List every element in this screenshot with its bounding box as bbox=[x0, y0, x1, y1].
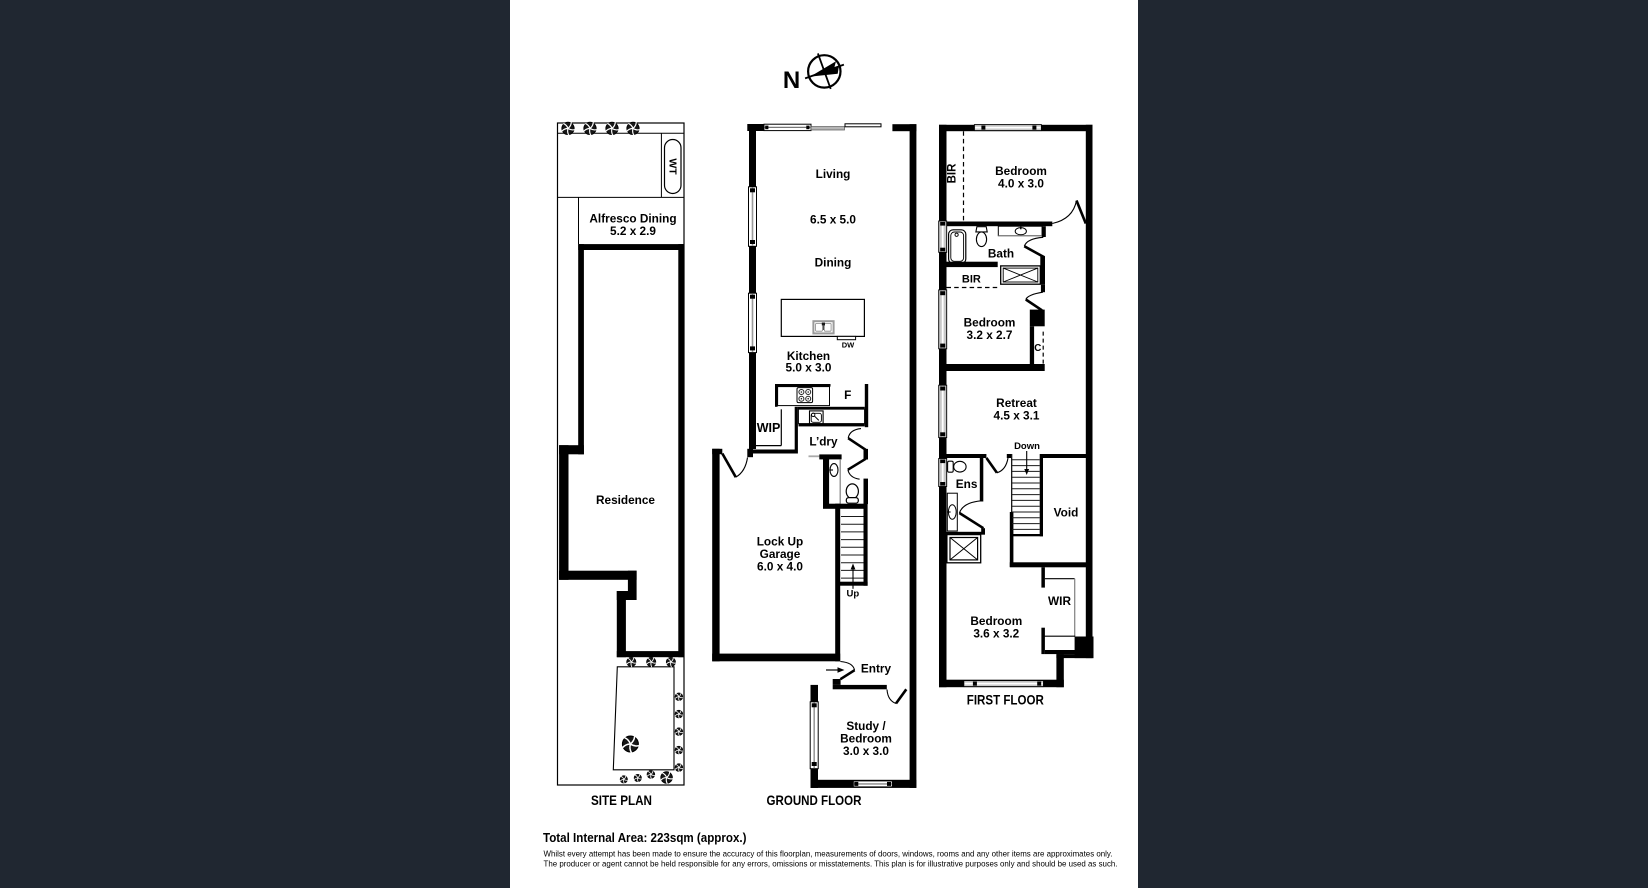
svg-text:WIR: WIR bbox=[1048, 594, 1071, 608]
svg-text:6.0 x 4.0: 6.0 x 4.0 bbox=[757, 560, 803, 574]
svg-text:3.0 x 3.0: 3.0 x 3.0 bbox=[843, 744, 889, 758]
svg-text:F: F bbox=[844, 388, 851, 402]
svg-text:N: N bbox=[783, 67, 800, 94]
svg-text:C: C bbox=[1034, 343, 1041, 354]
svg-text:5.2 x 2.9: 5.2 x 2.9 bbox=[610, 224, 656, 238]
svg-text:Up: Up bbox=[846, 589, 859, 600]
svg-text:L’dry: L’dry bbox=[809, 434, 838, 448]
svg-text:Ens: Ens bbox=[956, 477, 978, 491]
svg-text:Residence: Residence bbox=[596, 493, 655, 507]
svg-text:5.0 x 3.0: 5.0 x 3.0 bbox=[786, 360, 832, 374]
svg-text:Void: Void bbox=[1054, 506, 1079, 520]
svg-text:Living: Living bbox=[816, 167, 851, 181]
svg-text:Entry: Entry bbox=[861, 662, 892, 676]
svg-text:BIR: BIR bbox=[962, 274, 981, 286]
svg-text:6.5 x 5.0: 6.5 x 5.0 bbox=[810, 213, 856, 227]
svg-text:Whilst every attempt has been: Whilst every attempt has been made to en… bbox=[544, 848, 1113, 858]
svg-text:3.6 x 3.2: 3.6 x 3.2 bbox=[973, 627, 1019, 641]
svg-text:4.5 x 3.1: 4.5 x 3.1 bbox=[994, 408, 1040, 422]
svg-text:WIP: WIP bbox=[757, 421, 781, 435]
svg-text:Bath: Bath bbox=[988, 246, 1014, 260]
svg-text:Total Internal Area: 223sqm (a: Total Internal Area: 223sqm (approx.) bbox=[543, 831, 747, 845]
svg-text:BIR: BIR bbox=[947, 163, 959, 184]
svg-text:Down: Down bbox=[1014, 441, 1040, 452]
svg-text:SITE PLAN: SITE PLAN bbox=[591, 792, 652, 808]
svg-text:FIRST FLOOR: FIRST FLOOR bbox=[967, 692, 1044, 708]
svg-text:4.0 x 3.0: 4.0 x 3.0 bbox=[998, 176, 1044, 190]
svg-text:The producer or agent cannot b: The producer or agent cannot be held res… bbox=[544, 859, 1118, 869]
svg-text:Dining: Dining bbox=[815, 256, 852, 270]
svg-text:DW: DW bbox=[842, 341, 855, 350]
svg-text:GROUND FLOOR: GROUND FLOOR bbox=[767, 792, 862, 808]
svg-text:WT: WT bbox=[667, 158, 679, 175]
svg-text:3.2 x 2.7: 3.2 x 2.7 bbox=[967, 328, 1013, 342]
